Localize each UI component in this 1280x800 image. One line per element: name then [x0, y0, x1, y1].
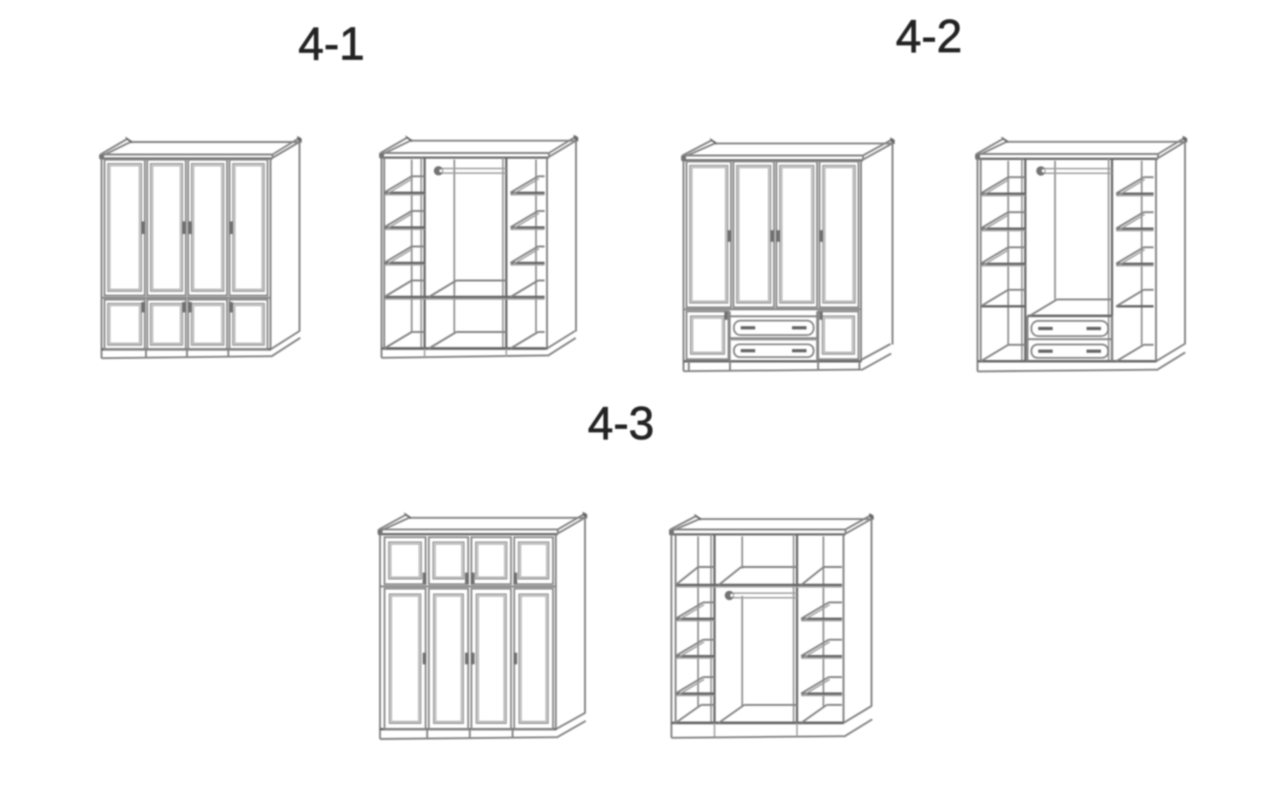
svg-text:4-2: 4-2: [896, 10, 962, 62]
svg-text:4-1: 4-1: [298, 18, 364, 70]
svg-text:4-3: 4-3: [588, 397, 654, 449]
